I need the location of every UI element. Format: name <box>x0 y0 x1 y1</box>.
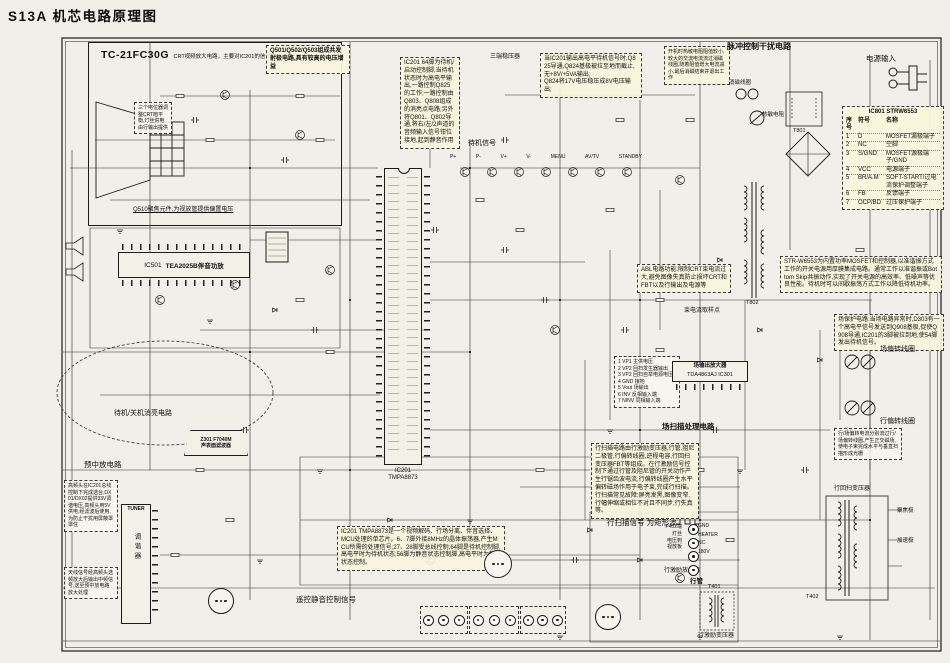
power-plug-icon <box>889 66 927 90</box>
page-title: S13A 机芯电路原理图 <box>8 5 158 25</box>
ic201-left-pins <box>376 176 382 460</box>
tuner-box: TUNER 调谐器 <box>121 504 151 624</box>
note-tuner-if: 天线信号经高频头选频放大后输出中频信号,送至预中放电路放大处理 <box>64 567 118 599</box>
label-vcoil: 场偏转线圈 <box>880 346 915 354</box>
ic501-ref: IC501 <box>144 262 161 269</box>
ic201-pinnames-left <box>388 177 399 457</box>
label-beam-sample: 束电流取样点 <box>684 308 720 315</box>
label-hdrive-tf: 行激励变压器 <box>698 633 734 640</box>
ic801-row: 6FB反馈端子 <box>846 190 940 199</box>
tuner-en-label: TUNER <box>122 506 150 512</box>
speaker-icons <box>66 237 83 281</box>
tuner-cn-label: 调谐器 <box>131 533 141 562</box>
ic501-part: TEA2025B伴音功放 <box>166 260 224 270</box>
note-deflection: 行/场偏转电流分别流过行/场偏转线圈,产生正交磁场,使电子束完成水平与垂直扫描形… <box>834 428 902 460</box>
label-hcoil: 行偏转线圈 <box>880 418 915 426</box>
ic301-part: TDA4863AJ IC301 <box>687 372 733 378</box>
round-connector-center <box>484 550 512 578</box>
av-jack-group-3 <box>520 606 566 634</box>
av-jack-group-1 <box>420 606 468 634</box>
key-v-minus: V- <box>526 154 531 160</box>
label-standby-signal: 待机信号 <box>468 140 496 148</box>
crt-bias-note: 三个电位器调整CRT暗平衡,灯丝供电由行输出提供 <box>134 102 172 134</box>
crt-model-label: TC-21FC30G <box>101 49 169 61</box>
note-ic201-pin64: IC201 64脚为待机/启动控制脚,当待机状态时为高电平输出,一路控制Q825… <box>400 57 460 149</box>
ic301-pins <box>676 384 744 390</box>
tuner-pins <box>152 510 158 618</box>
ic801-h0: 序号 <box>846 118 856 133</box>
ic801-row: 3S/GNDMOSFET源极端子/GND <box>846 150 940 166</box>
ic801-table-header: 序号 符号 名称 <box>846 118 940 133</box>
note-q501-amp: Q501/Q502/Q503组成共发射极电路,具有较高的电压增益 <box>266 45 350 74</box>
key-p-plus: P+ <box>450 154 456 160</box>
ref-t402: T402 <box>806 594 819 600</box>
saw-name: 声表面滤波器 <box>201 443 231 449</box>
key-p-minus: P- <box>476 154 481 160</box>
label-fbt: 行回扫变压器 <box>834 486 870 493</box>
transformer-t802-icon <box>744 182 764 298</box>
key-avtv: AV/TV <box>585 154 599 160</box>
ic801-h2: 名称 <box>886 118 940 133</box>
p402-label: P402端 灯丝 电压到 视放板 <box>648 524 682 551</box>
label-preif: 预中放电路 <box>84 461 122 469</box>
ic801-row: 1DMOSFET漏极端子 <box>846 133 940 142</box>
p402-pin-nc: NC <box>698 539 718 548</box>
ic801-row: 7OCP/BD过压保护端子 <box>846 199 940 208</box>
note-q825-standby: 当IC201输出高电平待机信号时,Q825导通,Q824基极被拉至地而截止,无+… <box>540 53 642 98</box>
hdrive-transformer-icon <box>700 592 734 630</box>
note-strw6553: STR-W6553为内置功率MOSFET和控制器,以准谐振方式工作的开关电源用厚… <box>780 256 942 293</box>
ic501-bottom-pins <box>122 280 248 286</box>
note-degauss: 开机时热敏电阻阻值较小,较大的交流电流流过消磁线圈,随着阻值增大电流减小,最后消… <box>664 46 730 85</box>
ref-t802: T802 <box>746 300 759 306</box>
ref-t801: T801 <box>793 128 806 134</box>
label-screen: 加速极 <box>897 538 914 544</box>
label-pulse-suppress: 脉冲控制干扰电路 <box>727 43 791 52</box>
p402-jacks <box>688 524 699 576</box>
saw-filter: Z301 F7040M 声表面滤波器 <box>184 430 248 456</box>
p402-pin-gnd: GND <box>698 522 718 531</box>
label-regulator: 三端稳压器 <box>490 54 520 61</box>
label-focus: 聚焦极 <box>897 508 914 514</box>
degauss-coil-icon <box>736 89 764 125</box>
note-hscan: 行扫描电路由行激励变压器,行管,阻尼二极管,行偏转线圈,逆程电容,行回扫变压器F… <box>591 443 699 519</box>
note-ic301-pins: 1 VP1 主供电压 2 VP2 回扫发生器输出 3 VP2 回扫自举电源电压 … <box>614 356 680 408</box>
ic801-row: 4VCC电源端子 <box>846 166 940 175</box>
ic201-body <box>384 168 422 465</box>
label-degauss-coil: 消磁线圈 <box>729 80 751 86</box>
round-connector-left <box>208 588 234 614</box>
ic801-row: 2NC空脚 <box>846 141 940 150</box>
ic301-name: 场输出放大器 <box>693 363 726 369</box>
ic801-table-title: IC801 STRW6553 <box>846 109 940 117</box>
ic801-row: 5BR/A.MSOFT-START/过电流保护调整端子 <box>846 174 940 190</box>
key-row-labels: P+ P- V+ V- MENU AV/TV STANDBY <box>450 154 642 160</box>
p402-pin-180v: 180V <box>698 548 718 557</box>
p402-pin-names: GND HEATER NC 180V <box>698 522 718 556</box>
label-power-input: 电源输入 <box>866 55 896 63</box>
av-jack-group-2 <box>469 606 519 634</box>
schematic-page: S13A 机芯电路原理图 TC-21FC30G CRT视频放大电路，主要对IC2… <box>0 0 950 663</box>
p402-pin-heater: HEATER <box>698 531 718 540</box>
ic201-notch <box>398 168 410 174</box>
ic501-top-pins <box>122 244 248 250</box>
key-v-plus: V+ <box>500 154 506 160</box>
label-thermistor: 热敏电阻 <box>762 112 784 118</box>
label-hout: 行管 <box>690 578 703 585</box>
key-menu: MENU <box>551 154 566 160</box>
ic801-pin-table: IC801 STRW6553 序号 符号 名称 1DMOSFET漏极端子 2NC… <box>842 106 944 210</box>
flyback-transformer-icon <box>826 496 902 600</box>
line-filter-icon <box>786 92 822 126</box>
ref-t401: T401 <box>708 584 721 590</box>
label-vscan: 场扫描处理电路 <box>662 423 715 431</box>
label-mute-signal: 遥控静音控制信号 <box>296 596 356 604</box>
note-tuner-bus: 高频头在IC201总线控制下完成选台,DX01/DX02提供33V调谐电压,高频… <box>64 480 118 532</box>
ic201-right-pins <box>424 176 430 460</box>
ic201-pinnames-right <box>407 177 418 457</box>
ic501-body: IC501 TEA2025B伴音功放 <box>118 252 250 278</box>
ic201-label: IC201 TMPA8873 <box>378 468 428 482</box>
ic301-body: 场输出放大器 TDA4863AJ IC301 <box>672 361 748 382</box>
note-ic201-desc: IC201 TMPA8873是一个视频解码、行场分离、伴音选择、MCU处理的单芯… <box>337 526 505 571</box>
ic801-h1: 符号 <box>858 118 884 133</box>
crt-footnote-label: Q510聚焦元件,为视放管提供偏置电压 <box>133 207 233 214</box>
note-abl: ABL电路功能:限制CRT束电流过大,避免图像失真防止损坏CRT和FBT以及行输… <box>637 264 731 293</box>
ic201-part: TMPA8873 <box>388 475 418 481</box>
label-spotkill: 待机/关机消亮电路 <box>114 410 172 418</box>
key-standby: STANDBY <box>619 154 642 160</box>
ic201-ref: IC201 <box>395 468 411 474</box>
round-connector-din <box>595 604 621 630</box>
bridge-rectifier-icon <box>786 132 830 176</box>
